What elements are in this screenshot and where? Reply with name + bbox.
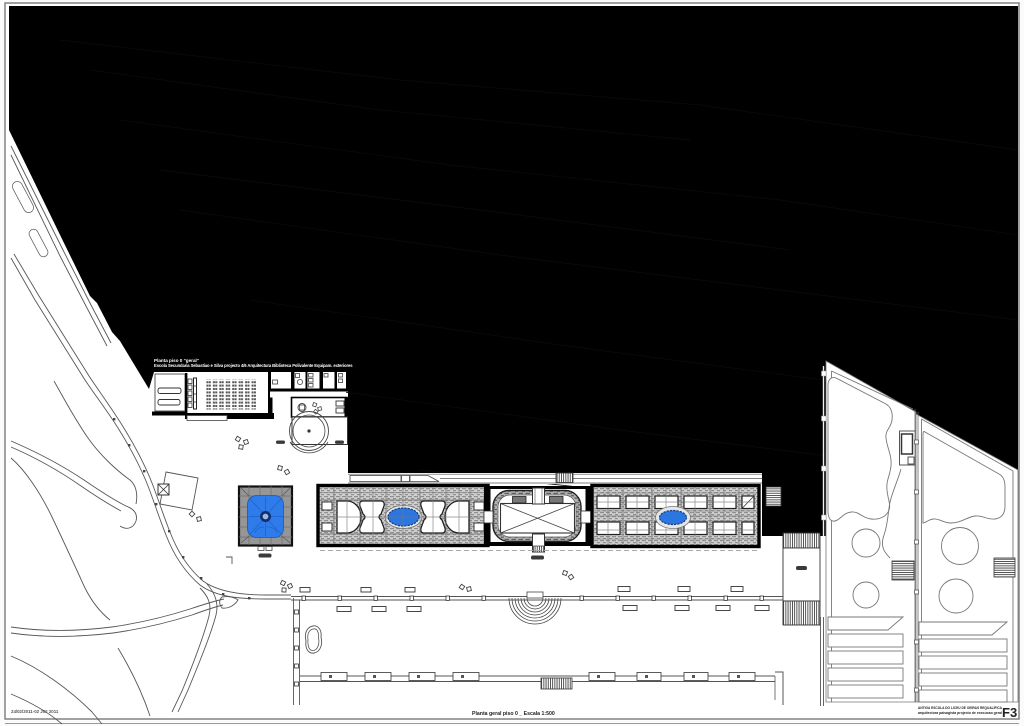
svg-text:F3: F3 — [1002, 705, 1017, 720]
svg-text:ANTIGA ESCOLA DO LICEU DE OEIR: ANTIGA ESCOLA DO LICEU DE OEIRAS REQUALI… — [918, 706, 1002, 710]
svg-text:Escola Secundaria Sebastiao e: Escola Secundaria Sebastiao e Silva proj… — [154, 363, 353, 368]
svg-text:Planta geral piso 0 _ Escala 1: Planta geral piso 0 _ Escala 1:500 — [472, 711, 555, 717]
svg-text:arquitectura paisagista projec: arquitectura paisagista projecto de exec… — [918, 711, 1002, 715]
svg-text:24/02/2011-02 J02 2011: 24/02/2011-02 J02 2011 — [11, 709, 59, 714]
